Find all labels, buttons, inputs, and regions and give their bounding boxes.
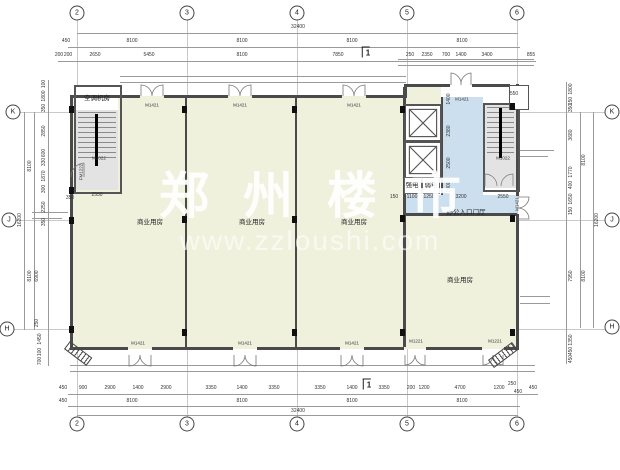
column bbox=[182, 329, 187, 336]
wall bbox=[472, 84, 510, 87]
dim-line bbox=[24, 112, 25, 330]
dimension-label: 5450 bbox=[143, 52, 154, 58]
dimension-label: 350 bbox=[41, 218, 47, 226]
grid-bubble: J bbox=[2, 213, 17, 228]
wall bbox=[164, 95, 228, 98]
grid-bubble: 3 bbox=[180, 6, 195, 21]
door-label: M1221 bbox=[488, 339, 502, 344]
grid-bubble: 3 bbox=[180, 417, 195, 432]
dimension-label: 3350 bbox=[205, 385, 216, 391]
dimension-label: 8100 bbox=[27, 160, 33, 171]
wall-right bbox=[516, 214, 519, 350]
dimension-label: 16200 bbox=[17, 213, 23, 227]
dimension-label: 8100 bbox=[346, 398, 357, 404]
dimension-label: 3200 bbox=[455, 194, 466, 200]
door-arc-m1221 bbox=[404, 350, 426, 368]
dimension-label: 1650 bbox=[568, 193, 574, 204]
door-arc-m1421 bbox=[233, 350, 257, 368]
grid-bubble: K bbox=[6, 105, 21, 120]
dimension-label: 200 bbox=[55, 52, 63, 58]
grid-bubble: 2 bbox=[70, 6, 85, 21]
dimension-label: 200 bbox=[407, 385, 415, 391]
dimension-label: 100 bbox=[41, 80, 47, 88]
room-label: 商业用房 bbox=[341, 216, 367, 226]
dim-line bbox=[77, 33, 518, 34]
dimension-label: 1770 bbox=[568, 166, 574, 177]
grid-bubble: K bbox=[605, 105, 620, 120]
dimension-label: 2350 bbox=[421, 52, 432, 58]
column bbox=[510, 103, 515, 110]
dimension-label: 1100 bbox=[407, 194, 418, 200]
dimension-label: 8100 bbox=[27, 270, 33, 281]
dimension-label: 8100 bbox=[126, 38, 137, 44]
door-label: FM1222 bbox=[79, 164, 84, 181]
dimension-label: 2900 bbox=[104, 385, 115, 391]
door-label: M1421 bbox=[238, 341, 252, 346]
door-arc-stair bbox=[500, 172, 514, 192]
dimension-label: 700 bbox=[442, 52, 450, 58]
door-label: M1421 bbox=[347, 103, 361, 108]
dimension-label: 1200 bbox=[418, 385, 429, 391]
dimension-label: 2250 bbox=[41, 201, 47, 212]
elevator-shaft bbox=[404, 104, 442, 142]
door-arc-m1421 bbox=[340, 350, 364, 368]
room-label: 办公入口门厅 bbox=[447, 206, 486, 216]
room-label: 空调机房 bbox=[84, 92, 110, 102]
door-label: M1022 bbox=[496, 156, 510, 161]
door-arc-stair bbox=[484, 172, 498, 192]
dimension-label: 150 bbox=[568, 207, 574, 215]
stair-right-rail bbox=[499, 108, 502, 158]
grid-bubble: 4 bbox=[290, 6, 305, 21]
wall bbox=[364, 347, 404, 350]
door-arc-m1421 bbox=[140, 83, 164, 101]
column bbox=[69, 106, 74, 113]
wall bbox=[426, 347, 482, 350]
dim-line bbox=[34, 112, 35, 330]
step-line bbox=[32, 212, 68, 213]
dimension-label: 2850 bbox=[41, 125, 47, 136]
wall bbox=[366, 95, 404, 98]
step-line bbox=[520, 156, 548, 157]
dimension-label: 2380 bbox=[446, 125, 452, 136]
dim-line bbox=[68, 406, 520, 407]
canopy-line bbox=[398, 65, 534, 66]
dimension-label: 7850 bbox=[332, 52, 343, 58]
step-line bbox=[520, 303, 550, 304]
dimension-label: 150 bbox=[390, 194, 398, 200]
dimension-label: 450 bbox=[568, 355, 574, 363]
room-label: 弱电 bbox=[425, 179, 438, 189]
section-mark: 1 bbox=[362, 47, 370, 58]
door-arc-m1421 bbox=[128, 350, 152, 368]
room-label: 商业用房 bbox=[239, 216, 265, 226]
dimension-label: 855 bbox=[527, 52, 535, 58]
grid-bubble: 6 bbox=[510, 417, 525, 432]
dimension-label: 2650 bbox=[89, 52, 100, 58]
column bbox=[182, 216, 187, 223]
dimension-label: 1350 bbox=[568, 334, 574, 345]
dimension-label: 3350 bbox=[378, 385, 389, 391]
dimension-label: 8100 bbox=[581, 270, 587, 281]
pavement-line bbox=[70, 371, 535, 372]
dimension-label: 1400 bbox=[346, 385, 357, 391]
grid-bubble: H bbox=[0, 322, 15, 337]
grid-bubble: H bbox=[605, 320, 620, 335]
dimension-label: 700 bbox=[37, 357, 43, 365]
column bbox=[292, 216, 297, 223]
dimension-label: 3350 bbox=[314, 385, 325, 391]
dimension-label: 2550 bbox=[91, 192, 102, 198]
dimension-label: 600 bbox=[41, 149, 47, 157]
dimension-label: 1800 bbox=[568, 83, 574, 94]
dimension-label: 8100 bbox=[236, 52, 247, 58]
dim-line bbox=[58, 61, 536, 62]
door-arc-m1421 bbox=[342, 83, 366, 101]
dimension-label: 450 bbox=[529, 385, 537, 391]
grid-bubble: 2 bbox=[70, 417, 85, 432]
dimension-label: 3350 bbox=[268, 385, 279, 391]
dimension-label: 350 bbox=[66, 195, 74, 201]
dimension-label: 450 bbox=[62, 38, 70, 44]
column bbox=[510, 329, 515, 336]
column bbox=[292, 106, 297, 113]
dimension-label: 8100 bbox=[346, 38, 357, 44]
room-label: 商业用房 bbox=[447, 274, 473, 284]
dimension-label: 250 bbox=[406, 52, 414, 58]
dimension-label: 1250 bbox=[423, 194, 434, 200]
dim-line bbox=[68, 394, 538, 395]
dimension-label: 1400 bbox=[236, 385, 247, 391]
door-arc-m1421 bbox=[228, 83, 252, 101]
column bbox=[69, 217, 74, 224]
door-arc-hall bbox=[450, 71, 472, 90]
column bbox=[69, 187, 74, 194]
dimension-label: 7950 bbox=[568, 270, 574, 281]
dim-line bbox=[580, 112, 581, 328]
dimension-label: 8100 bbox=[236, 38, 247, 44]
dimension-label: 300 bbox=[41, 185, 47, 193]
dimension-label: 450 bbox=[59, 398, 67, 404]
dimension-label: 4700 bbox=[454, 385, 465, 391]
door-label: M1221 bbox=[409, 339, 423, 344]
grid-bubble: 6 bbox=[510, 6, 525, 21]
dimension-label: 1450 bbox=[37, 333, 43, 344]
dim-line bbox=[566, 82, 567, 364]
floor-plan-canvas: 郑州楼市 www.zzloushi.com 2345623456KJHKJH 3… bbox=[0, 0, 620, 470]
dim-line bbox=[48, 80, 49, 366]
door-label: M1421 bbox=[345, 341, 359, 346]
dimension-label: 16200 bbox=[594, 213, 600, 227]
dimension-label: 8100 bbox=[581, 154, 587, 165]
step-line bbox=[520, 150, 554, 151]
room-label: 强电 bbox=[406, 179, 419, 189]
elevator-shaft bbox=[404, 141, 442, 179]
dimension-label: 250 bbox=[34, 319, 40, 327]
dimension-label: 400 bbox=[568, 181, 574, 189]
door-label: M1022 bbox=[92, 156, 106, 161]
dimension-label: 1400 bbox=[455, 52, 466, 58]
door-label: M1421 bbox=[455, 97, 469, 102]
dimension-label: 1400 bbox=[446, 93, 452, 104]
dimension-label: 32400 bbox=[291, 24, 305, 30]
dimension-label: 250 bbox=[508, 381, 516, 387]
dimension-label: 2900 bbox=[160, 385, 171, 391]
canopy-line bbox=[398, 59, 534, 60]
dimension-label: 350 bbox=[41, 104, 47, 112]
dimension-label: 2500 bbox=[446, 157, 452, 168]
door-label: M1421 bbox=[233, 103, 247, 108]
wall bbox=[257, 347, 340, 350]
column bbox=[292, 329, 297, 336]
door-label: M1421 bbox=[145, 103, 159, 108]
dimension-label: 1000 bbox=[446, 181, 452, 192]
wall bbox=[152, 347, 233, 350]
door-label: M1421 bbox=[515, 197, 520, 211]
column bbox=[69, 326, 74, 333]
dimension-label: 1870 bbox=[41, 170, 47, 181]
dimension-label: 8100 bbox=[236, 398, 247, 404]
column bbox=[400, 215, 405, 222]
step-line bbox=[520, 296, 550, 297]
dim-line bbox=[68, 47, 520, 48]
service-strip-fill bbox=[404, 86, 441, 106]
grid-bubble: J bbox=[605, 213, 620, 228]
dimension-label: 1800 bbox=[41, 90, 47, 101]
grid-bubble: 4 bbox=[290, 417, 305, 432]
section-mark: 1 bbox=[363, 379, 371, 390]
dimension-label: 3400 bbox=[481, 52, 492, 58]
dimension-label: 1400 bbox=[132, 385, 143, 391]
dimension-label: 330 bbox=[41, 158, 47, 166]
dimension-label: 200 bbox=[64, 52, 72, 58]
grid-bubble: 5 bbox=[400, 6, 415, 21]
dimension-label: 32400 bbox=[291, 408, 305, 414]
dimension-label: 350 bbox=[568, 104, 574, 112]
dimension-label: 2550 bbox=[497, 194, 508, 200]
room-label: 商业用房 bbox=[137, 216, 163, 226]
dimension-label: 550 bbox=[510, 91, 518, 97]
column bbox=[182, 106, 187, 113]
wall bbox=[404, 84, 450, 87]
grid-bubble: 5 bbox=[400, 417, 415, 432]
step-line bbox=[32, 218, 62, 219]
dimension-label: 8100 bbox=[456, 38, 467, 44]
dimension-label: 1200 bbox=[493, 385, 504, 391]
dimension-label: 3680 bbox=[568, 129, 574, 140]
dimension-label: 8100 bbox=[126, 398, 137, 404]
column bbox=[400, 329, 405, 336]
dimension-label: 100 bbox=[37, 348, 43, 356]
wall bbox=[252, 95, 342, 98]
dimension-label: 900 bbox=[79, 385, 87, 391]
door-label: M1421 bbox=[131, 341, 145, 346]
column bbox=[400, 106, 405, 113]
dimension-label: 450 bbox=[59, 385, 67, 391]
dimension-label: 450 bbox=[514, 389, 522, 395]
dimension-label: 8100 bbox=[456, 398, 467, 404]
dimension-label: 6900 bbox=[34, 270, 40, 281]
canopy-line bbox=[120, 76, 406, 77]
